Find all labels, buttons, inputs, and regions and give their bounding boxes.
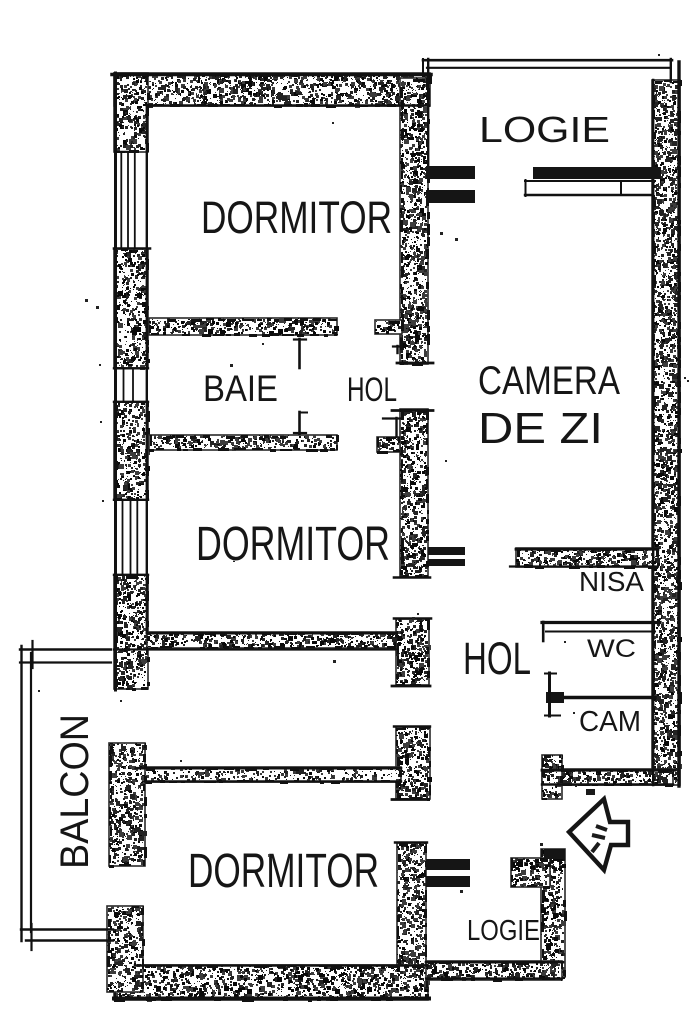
svg-text:WC: WC xyxy=(587,635,636,663)
svg-text:CAM: CAM xyxy=(579,706,641,738)
svg-text:HOL: HOL xyxy=(347,371,397,409)
svg-text:LOGIE: LOGIE xyxy=(479,109,610,150)
svg-text:DORMITOR: DORMITOR xyxy=(188,845,379,898)
svg-text:HOL: HOL xyxy=(463,633,531,684)
svg-text:LOGIE: LOGIE xyxy=(467,915,540,947)
svg-text:DE ZI: DE ZI xyxy=(478,404,603,453)
svg-text:CAMERA: CAMERA xyxy=(478,359,620,403)
svg-text:NISA: NISA xyxy=(579,566,644,597)
svg-text:DORMITOR: DORMITOR xyxy=(196,518,390,571)
svg-text:DORMITOR: DORMITOR xyxy=(201,192,392,243)
svg-text:BALCON: BALCON xyxy=(53,714,97,869)
svg-text:BAIE: BAIE xyxy=(203,368,278,409)
